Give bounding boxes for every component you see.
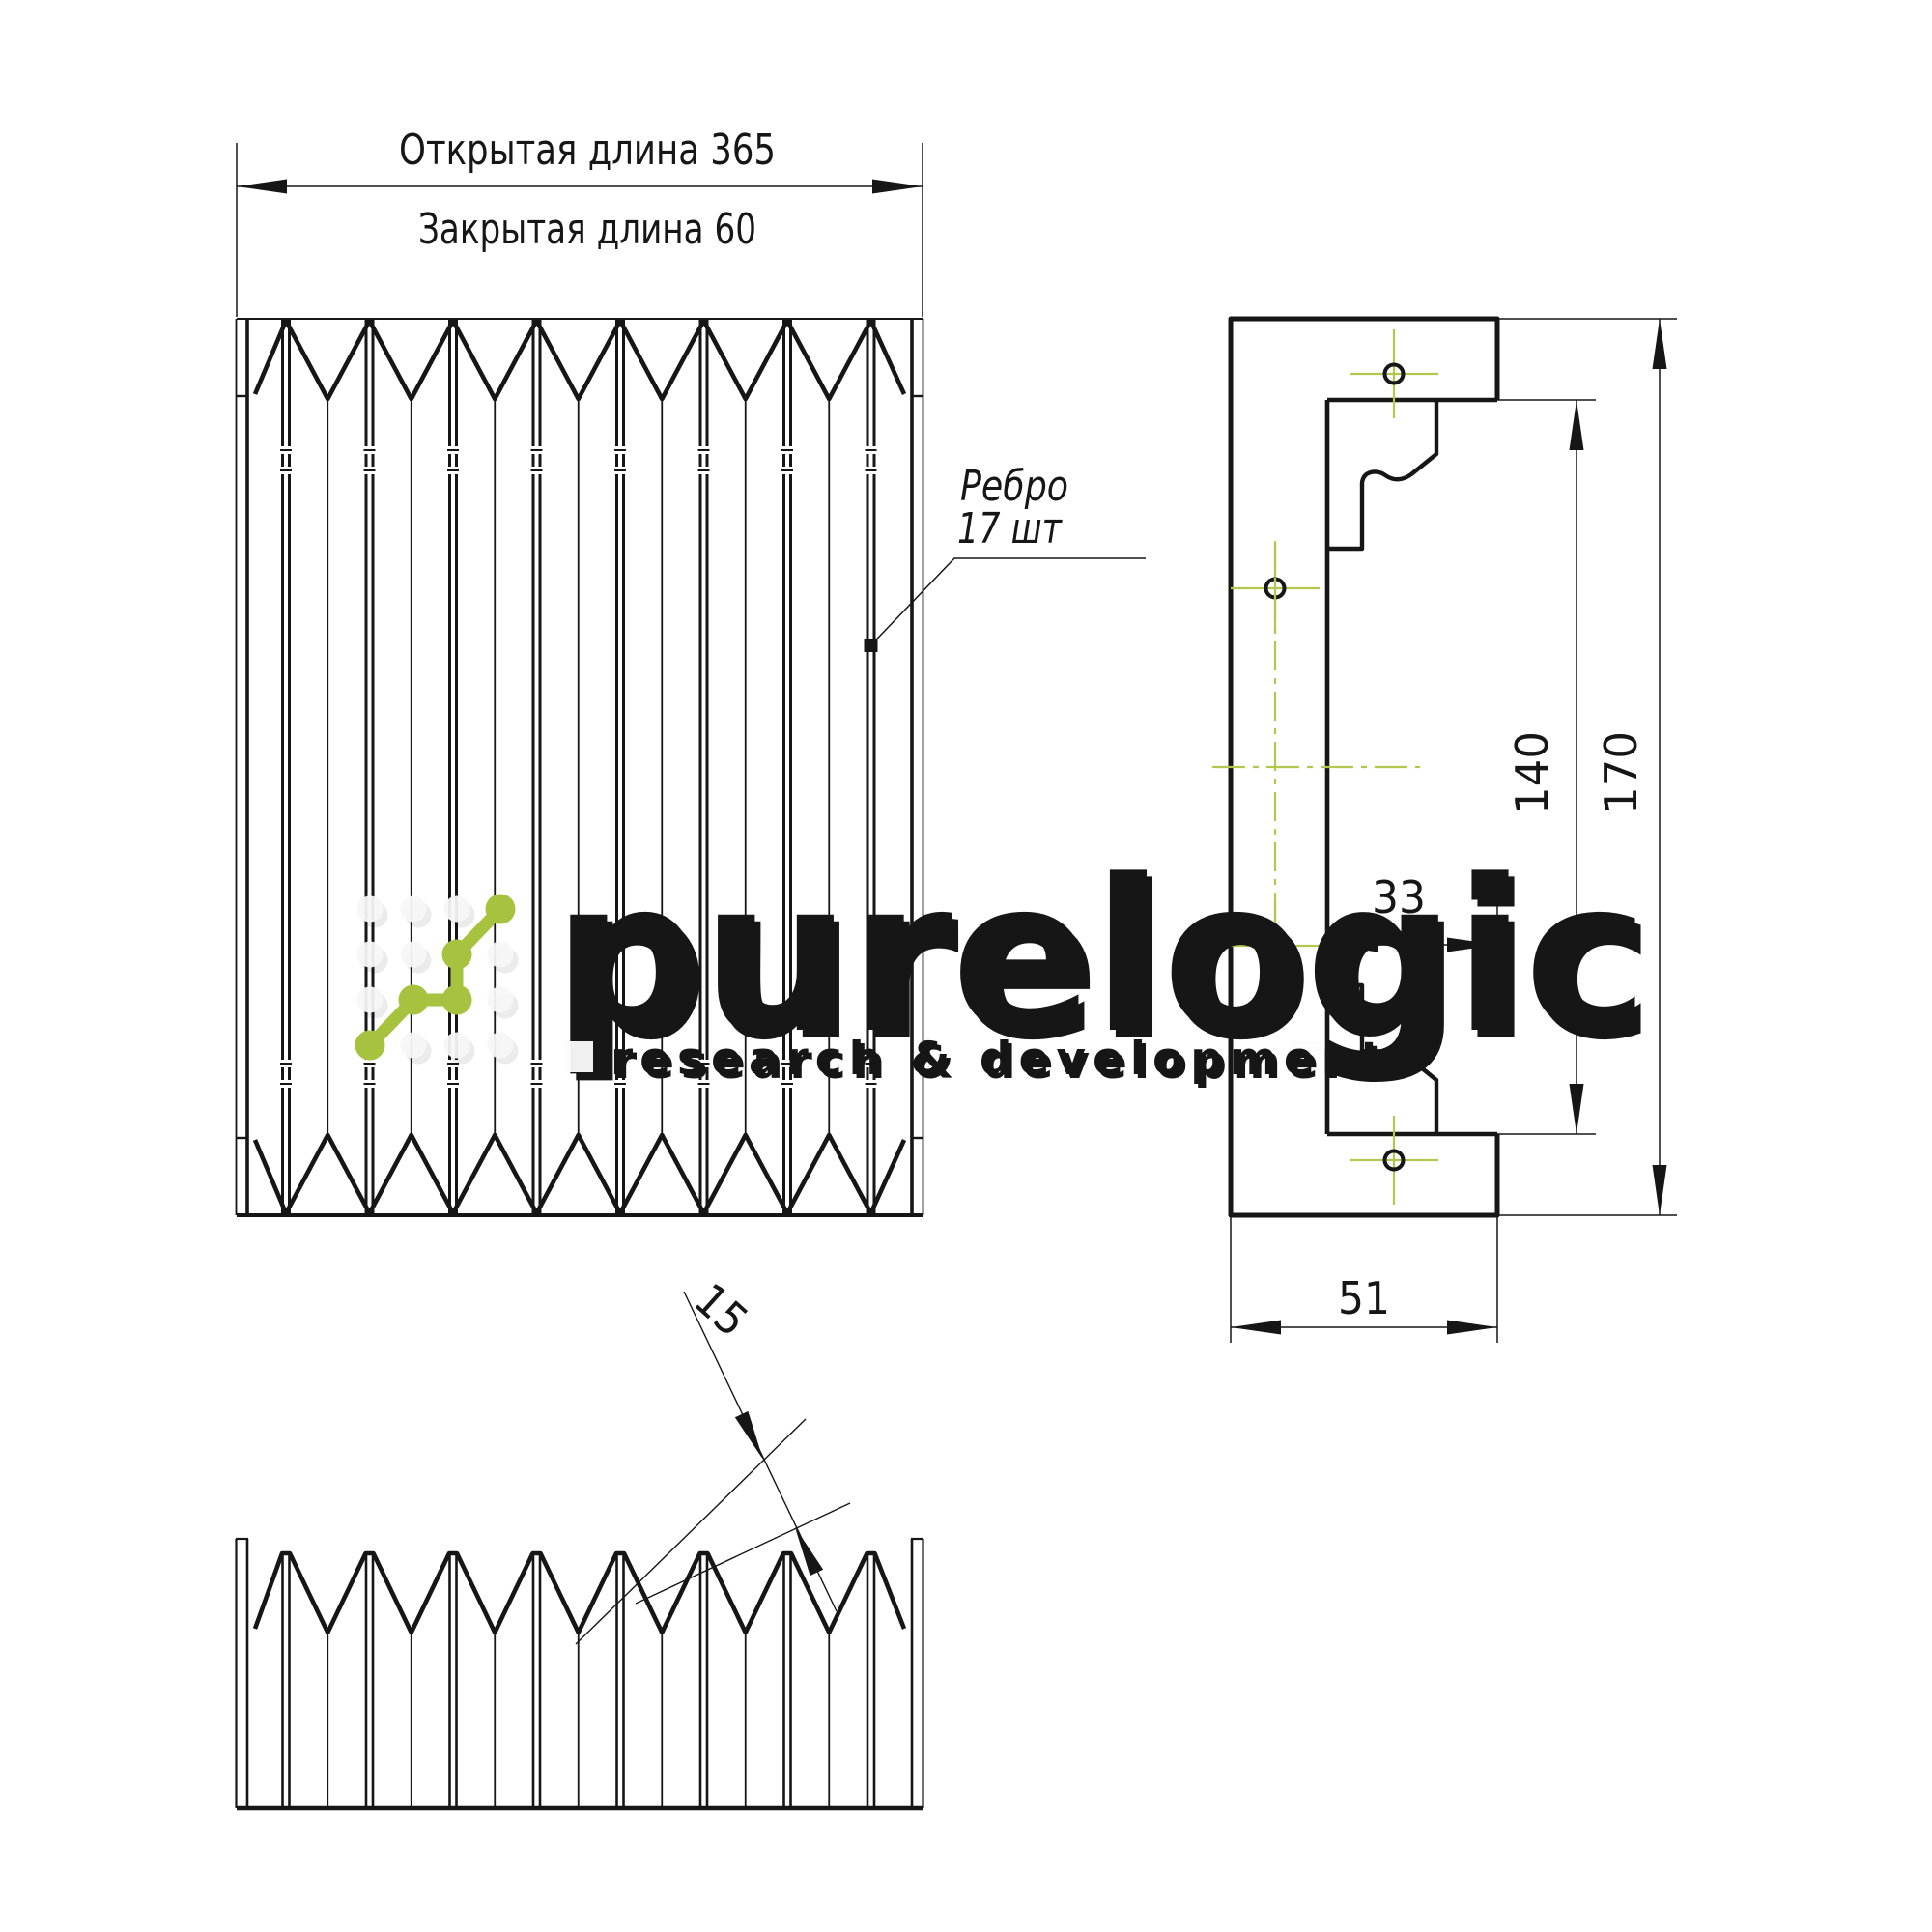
watermark: purelogic purelogic research & developme… — [355, 836, 1654, 1090]
dim-51-label: 51 — [1338, 1272, 1390, 1324]
watermark-block-left — [564, 1041, 593, 1072]
watermark-logo-dots — [355, 895, 519, 1065]
rib-callout-line2: 17 шт — [957, 504, 1063, 554]
dim-15-label: 15 — [685, 1273, 758, 1347]
annotation-texts: Открытая длина 365 Закрытая длина 60 Реб… — [399, 126, 1647, 1347]
dim-140-label: 140 — [1506, 731, 1558, 814]
open-length-label: Открытая длина 365 — [399, 126, 776, 175]
watermark-subtitle: research & development — [611, 1033, 1389, 1086]
closed-length-label: Закрытая длина 60 — [418, 205, 756, 254]
technical-drawing-sheet: Открытая длина 365 Закрытая длина 60 Реб… — [0, 0, 1932, 1932]
dim-170-label: 170 — [1595, 731, 1647, 814]
bottom-view-bellows — [236, 1539, 923, 1808]
